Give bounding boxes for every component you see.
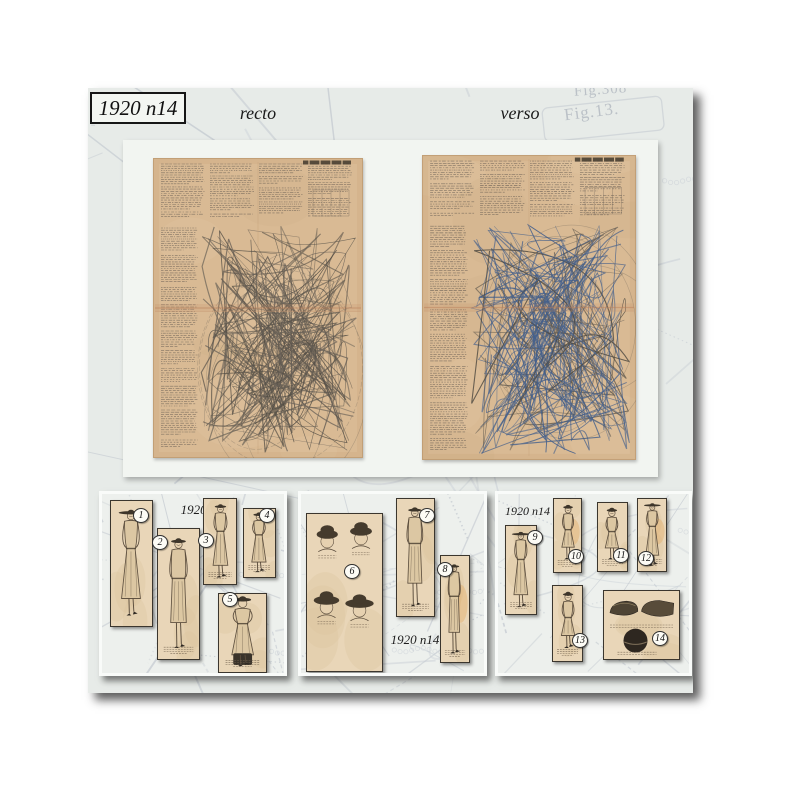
fashion-figure-thumb-13 — [552, 585, 583, 662]
watermark-fig-label: Fig.13. — [563, 99, 620, 126]
hat-objects-thumb-14 — [603, 590, 680, 660]
figure-number-badge-8: 8 — [437, 562, 453, 577]
thumbnails-panel-1: 1920 n14 1 2 3 4 5 — [99, 491, 287, 676]
pattern-id-label: 1920 n14 — [90, 92, 186, 124]
figure-number-badge-7: 7 — [419, 508, 435, 523]
figure-number-badge-14: 14 — [652, 631, 668, 646]
figure-number-badge-6: 6 — [344, 564, 360, 579]
figure-number-badge-10: 10 — [568, 549, 584, 564]
thumbnails-panel-2: 1920 n14 6 7 8 — [298, 491, 487, 676]
watermark-fig-label: Fig.308 — [573, 88, 627, 101]
product-image: Fig.308 Fig.13. 1920 n14 recto verso 192… — [0, 0, 800, 800]
composite-scan: Fig.308 Fig.13. 1920 n14 recto verso 192… — [88, 88, 693, 693]
figure-number-badge-5: 5 — [222, 592, 238, 607]
thumbnails-panel-3: 1920 n14 9 10 11 12 13 — [495, 491, 692, 676]
pattern-sheet-verso-scan — [422, 155, 636, 460]
figure-number-badge-9: 9 — [527, 530, 543, 545]
pattern-sheet-recto-scan — [153, 158, 363, 458]
recto-label: recto — [216, 103, 300, 124]
hats-thumb-6 — [306, 513, 383, 672]
figure-number-badge-2: 2 — [152, 535, 168, 550]
figure-number-badge-1: 1 — [133, 508, 149, 523]
pattern-sheets-card — [123, 140, 658, 477]
figure-number-badge-4: 4 — [259, 508, 275, 523]
figure-number-badge-12: 12 — [638, 551, 654, 566]
pattern-id-text: 1920 n14 — [99, 96, 178, 121]
verso-label: verso — [478, 103, 562, 124]
figure-number-badge-3: 3 — [198, 533, 214, 548]
figure-number-badge-13: 13 — [572, 633, 588, 648]
figure-number-badge-11: 11 — [613, 548, 629, 563]
